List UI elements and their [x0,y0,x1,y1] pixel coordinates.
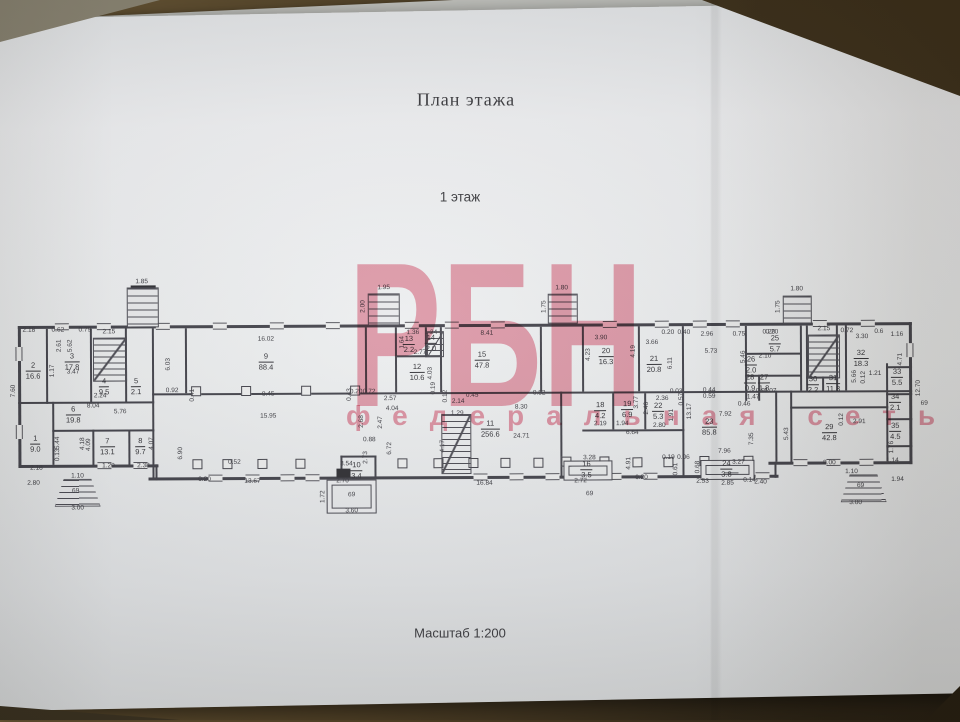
window-symbol [726,320,740,327]
room-label: 335.5 [891,368,903,387]
porch-steps [783,296,812,324]
room-area: 19.8 [66,415,81,424]
room-number: 29 [822,423,837,433]
dimension-label: 0.12 [443,390,450,403]
room-number: 32 [854,349,869,359]
dimension-label: 1.21 [869,371,882,378]
dimension-label: 2.15 [103,329,116,336]
dimension-label: 0.20 [350,389,363,396]
dimension-label: 0.46 [738,402,751,409]
dimension-label: 16.84 [476,481,492,488]
room-label: 49.5 [99,377,110,396]
room-number: 18 [594,401,606,411]
room-label: 1210.6 [410,363,425,382]
dimension-label: 0.45 [466,393,479,400]
dimension-label: 2.80 [27,481,40,488]
room-number: 24 [720,460,732,470]
wall [638,326,640,391]
dimension-label: 6.11 [668,357,675,369]
wall [365,327,367,392]
dimension-label: 0.20 [662,330,675,337]
dimension-label: 0.61 [673,463,680,476]
room-label: 225.3 [652,402,664,421]
dimension-label: 2.18 [30,466,43,473]
room-label: 988.4 [259,353,274,372]
dimension-label: 4.91 [626,457,633,470]
room-label: 163.5 [580,460,592,479]
dimension-label: 4.19 [631,345,638,358]
window-symbol [405,322,419,329]
dimension-label: 0.12 [861,371,868,384]
window-symbol [213,323,227,330]
dimension-label: 8.41 [481,331,494,338]
room-area: 11.8 [826,384,840,393]
wall [90,329,92,404]
dimension-label: 2.72 [574,478,587,485]
porch-steps [548,294,578,324]
room-number: 10 [350,461,362,471]
column [257,459,267,469]
room-area: 5.3 [652,412,664,421]
room-area: 6.9 [621,410,633,419]
dimension-label: 2.40 [754,479,767,486]
room-label: 52.1 [131,377,142,396]
dimension-label: 3.90 [595,335,608,342]
column [192,459,202,469]
dimension-label: 1.29 [451,411,464,418]
window-symbol [793,459,807,466]
wall [185,328,187,393]
window-symbol [280,474,294,481]
room-number: 27 [758,373,770,383]
room-area: 85.8 [702,427,717,436]
column [500,458,510,468]
dimension-label: 1.10 [71,473,84,480]
room-number: 13 [403,335,415,345]
dimension-label: 0.06 [677,455,690,462]
dimension-label: 2.18 [23,328,36,335]
room-area: 0.9 [744,383,756,392]
room-number: 21 [647,355,662,365]
dimension-label: 7.60 [11,385,18,398]
dimension-label: 12.70 [916,380,923,396]
floor-plan-drawing: 2.180.620.792.151.8516.021.952.008.411.8… [0,0,960,722]
room-area: 20.8 [647,365,662,374]
room-label: 2385.8 [702,418,717,437]
room-label: 354.5 [889,422,901,441]
dimension-label: 1.94 [891,477,904,484]
dimension-label: 13.17 [687,403,694,419]
dimension-label: 0.45 [262,392,275,399]
dimension-label: 5.76 [114,409,127,416]
dimension-label: 4.17 [440,440,447,453]
room-area: 4.2 [594,411,606,420]
column [301,386,311,396]
column [533,458,543,468]
dimension-label: 2.46 [644,402,651,415]
dimension-label: 0.72 [841,328,854,335]
dimension-label: 3.66 [646,340,659,347]
dimension-label: 2.57 [384,396,397,403]
window-symbol [861,320,875,327]
stairs-symbol [93,338,127,382]
room-number: 1 [30,435,40,445]
dimension-label: 0.59 [703,394,716,401]
room-area: 2.0 [425,343,437,352]
wall [790,406,888,408]
room-number: 12 [410,363,425,373]
window-symbol [15,347,22,361]
wall [774,462,776,478]
room-area: 3.8 [720,469,732,478]
window-symbol [326,322,340,329]
room-number: 4 [99,377,109,387]
room-label: 243.8 [720,460,732,479]
dimension-label: 1.75 [541,300,548,313]
dimension-label: 5.73 [705,349,718,356]
room-number: 33 [891,368,903,378]
room-number: 7 [100,437,115,447]
dimension-label: 13.67 [244,479,260,486]
room-number: 23 [702,418,717,428]
dimension-label: 1.72 [320,490,327,503]
window-symbol [545,473,559,480]
dimension-label: 69 [348,492,355,499]
room-area: 3.4 [350,471,362,480]
dimension-label: 0.6 [874,329,883,336]
room-area: 2.1 [889,402,901,411]
dimension-label: 2.14 [452,399,465,406]
room-label: 280.9 [744,373,756,392]
dimension-label: 0.19 [662,455,675,462]
room-area: 47.8 [475,360,490,369]
dimension-label: 1.16 [891,332,904,339]
dimension-label: 1.94 [616,421,629,428]
dimension-label: 0.82 [533,390,546,397]
room-label: 262.0 [745,355,757,374]
dimension-label: 2.47 [378,416,385,429]
dimension-label: 3.00 [71,505,84,512]
dimension-label: 16.02 [258,337,274,344]
filled-mark [336,469,350,478]
room-label: 255.7 [769,334,781,353]
room-label: 713.1 [100,437,115,456]
room-number: 8 [135,437,145,447]
room-label: 2016.3 [599,347,614,366]
room-number: 22 [652,402,664,412]
dimension-label: 0.40 [678,330,691,337]
room-area: 4.5 [889,431,901,440]
dimension-label: 7.96 [718,449,731,456]
column [295,459,305,469]
window-symbol [655,321,669,328]
room-label: 619.8 [66,405,81,424]
room-area: 88.4 [259,362,274,371]
photo-of-floor-plan-document: { "document": { "title": "План этажа", "… [0,0,960,720]
room-label: 89.7 [135,437,146,456]
room-number: 26 [745,355,757,365]
room-area: 16.3 [599,357,614,366]
dimension-label: 0.03 [670,389,683,396]
dimension-label: 3.30 [856,334,869,341]
dimension-label: 1.20 [102,463,115,470]
dimension-label: 5.62 [68,339,75,352]
dimension-label: 3.60 [345,508,358,515]
room-number: 14 [425,334,437,344]
window-symbol [603,321,617,328]
dimension-label: 69 [857,483,864,490]
room-area: 18.3 [854,359,869,368]
room-label: 3111.8 [826,374,840,393]
dimension-label: 8.30 [515,405,528,412]
dimension-label: 69 [72,489,79,496]
dimension-label: 69 [921,401,928,408]
dimension-label: 0.75 [733,332,746,339]
window-symbol [16,425,23,439]
room-label: 317.8 [65,352,80,371]
room-area: 5.5 [891,377,903,386]
scale-label: Масштаб 1:200 [414,626,506,641]
wall [800,326,802,391]
room-area: 1.8 [758,383,770,392]
room-area: 3.5 [580,470,592,479]
dimension-label: 1.80 [790,286,803,293]
dimension-label: 24.71 [513,434,529,441]
dimension-label: 4.03 [428,367,435,380]
dimension-label: 2.10 [759,353,772,360]
wall [845,325,847,390]
dimension-label: 2.19 [594,421,607,428]
room-number: 20 [599,347,614,357]
room-area: 17.8 [65,362,80,371]
dimension-label: 0.12 [839,413,846,426]
dimension-label: 8.04 [87,403,100,410]
dimension-label: 1.14 [886,458,899,465]
dimension-label: 0.68 [695,461,702,474]
dimension-label: 6.64 [626,430,639,437]
porch-steps [368,293,400,325]
dimension-label: 0.13 [55,448,62,461]
dimension-label: 3.27 [732,460,745,467]
room-number: 5 [131,377,141,387]
dimension-label: 2.53 [696,479,709,486]
dimension-label: 1.91 [669,409,676,422]
room-number: 31 [826,374,840,384]
dimension-label: 8.00 [823,460,836,467]
room-label: 2942.8 [822,423,837,442]
wall [822,376,824,390]
wall [52,429,154,431]
dimension-label: 4.23 [586,348,593,361]
dimension-label: 1.10 [845,469,858,476]
room-number: 6 [66,405,81,415]
dimension-label: 2.73 [363,451,370,464]
room-number: 3 [65,352,80,362]
dimension-label: 4.71 [898,353,905,366]
room-area: 9.0 [30,444,40,453]
dimension-label: 4.04 [386,406,399,413]
window-symbol [445,322,459,329]
dimension-label: 1.80 [555,285,568,292]
dimension-label: 5.66 [852,370,859,383]
dimension-label: 2.91 [853,419,866,426]
window-symbol [305,474,319,481]
wall [340,455,376,457]
dimension-label: 0.79 [79,327,92,334]
dimension-label: 0.88 [363,437,376,444]
dimension-label: 7.92 [719,412,732,419]
window-symbol [270,322,284,329]
dimension-label: 7.35 [749,432,756,445]
room-number: 34 [889,393,901,403]
room-label: 1547.8 [475,351,490,370]
dimension-label: 1.85 [135,279,148,286]
room-area: 9.5 [99,387,109,396]
wall [612,393,614,429]
window-symbol [906,343,913,357]
dimension-label: 0.52 [228,460,241,467]
room-number: 9 [259,353,274,363]
room-label: 19.0 [30,435,41,454]
room-label: 271.8 [758,373,770,392]
room-label: 196.9 [621,400,633,419]
dimension-label: 4.09 [86,438,93,451]
dimension-label: 2.70 [336,478,349,485]
room-area: 16.6 [26,371,41,380]
column [241,386,251,396]
room-area: 256.6 [481,429,500,438]
room-label: 216.6 [26,362,41,381]
dimension-label: 4.07 [149,437,156,450]
room-label: 11256.6 [481,420,500,439]
dimension-label: 6.72 [387,442,394,455]
window-symbol [491,321,505,328]
column [632,457,642,467]
wall [128,430,130,466]
room-label: 132.2 [403,335,415,354]
room-label: 142.0 [425,334,437,353]
dimension-label: 2.38 [137,463,150,470]
room-number: 19 [621,400,633,410]
wall [155,464,157,480]
dimension-label: 0.19 [431,382,438,395]
window-symbol [509,473,523,480]
room-area: 42.8 [822,433,837,442]
dimension-label: 2.15 [818,326,831,333]
dimension-label: 1.17 [50,365,57,378]
room-number: 2 [26,362,41,372]
dimension-label: 3.77 [634,396,641,409]
wall [540,327,542,392]
column [397,458,407,468]
porch-steps [127,287,159,327]
dimension-label: 5.43 [784,427,791,440]
room-number: 25 [769,334,781,344]
dimension-label: 2.85 [721,481,734,488]
room-number: 30 [807,375,819,385]
dimension-label: 2.61 [57,339,64,352]
room-number: 15 [475,351,490,361]
room-area: 2.2 [403,345,415,354]
room-label: 184.2 [594,401,606,420]
dimension-label: 15.95 [260,414,276,421]
dimension-label: 2.68 [359,415,366,428]
room-number: 35 [889,422,901,432]
dimension-label: 69 [586,491,593,498]
dimension-label: 0.72 [363,389,376,396]
dimension-label: 3.00 [849,500,862,507]
dimension-label: 2.96 [701,332,714,339]
room-area: 2.1 [131,387,141,396]
room-area: 5.7 [769,344,781,353]
room-area: 9.7 [135,447,145,456]
dimension-label: 1.95 [377,285,390,292]
dimension-label: 0.41 [190,389,197,402]
window-symbol [693,321,707,328]
room-label: 2120.8 [647,355,662,374]
room-number: 16 [580,460,592,470]
wall [395,327,397,392]
dimension-label: 0.92 [166,388,179,395]
dimension-label: 6.90 [178,447,185,460]
room-label: 103.4 [350,461,362,480]
dimension-label: 0.62 [52,328,65,335]
dimension-label: 0.20 [198,477,211,484]
room-area: 10.6 [410,373,425,382]
room-label: 342.1 [889,393,901,412]
dimension-label: 2.80 [653,423,666,430]
dimension-label: 1.75 [775,300,782,313]
stairs-symbol [808,334,840,378]
room-area: 13.1 [100,447,115,456]
wall [374,455,376,477]
wall [775,391,777,462]
room-label: 3218.3 [854,349,869,368]
dimension-label: 0.20 [635,475,648,482]
dimension-label: 6.03 [166,358,173,371]
dimension-label: 2.00 [360,300,367,313]
room-number: 11 [481,420,500,430]
room-area: 2.2 [807,385,819,394]
room-number: 28 [744,373,756,383]
window-symbol [859,459,873,466]
dimension-label: 1.76 [889,441,896,454]
room-label: 302.2 [807,375,819,394]
